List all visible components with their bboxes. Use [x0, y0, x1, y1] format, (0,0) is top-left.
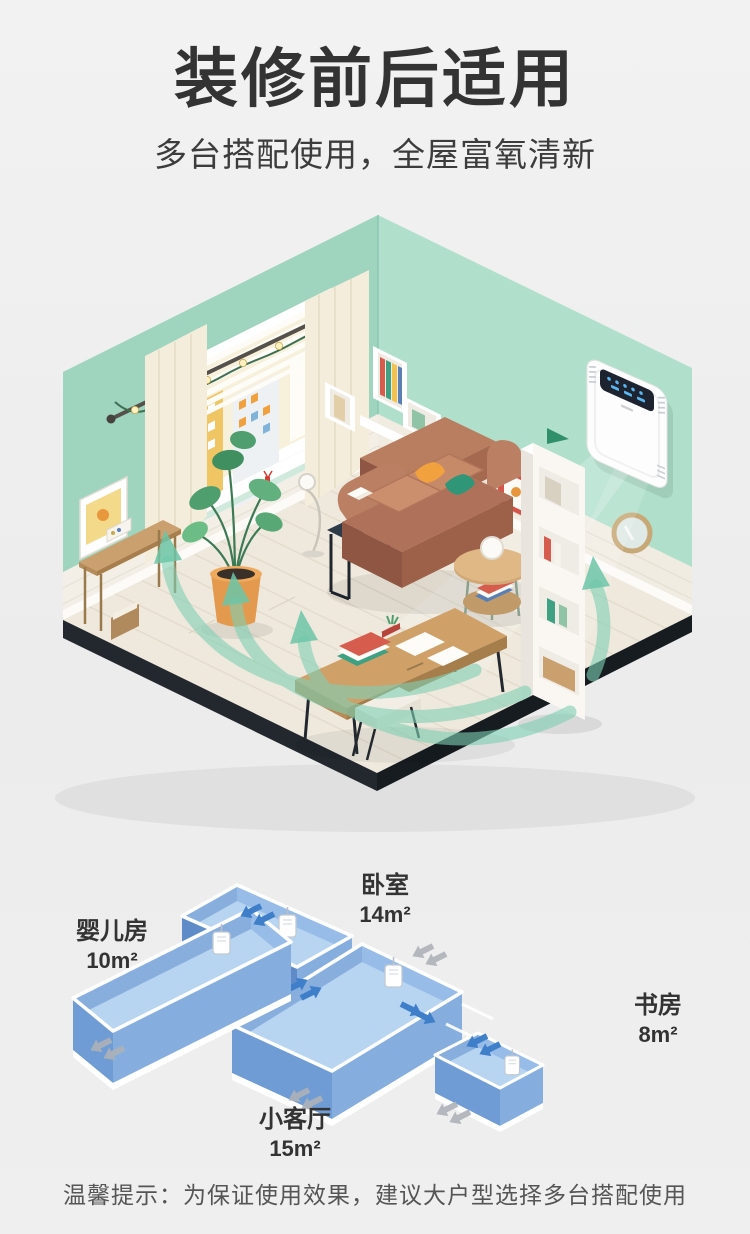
- promo-page: 装修前后适用 多台搭配使用，全屋富氧清新: [0, 0, 750, 1234]
- floorplan: 婴儿房 10m² 卧室 14m² 书房 8m² 小客厅 15m²: [25, 858, 725, 1193]
- page-title: 装修前后适用: [0, 44, 750, 114]
- label-study: 书房 8m²: [593, 990, 723, 1050]
- room-illustration-svg: [55, 200, 695, 840]
- label-baby-room: 婴儿房 10m²: [47, 916, 177, 976]
- exhaust-arrows: [409, 940, 449, 971]
- label-bedroom: 卧室 14m²: [320, 870, 450, 930]
- footer-tip: 温馨提示：为保证使用效果，建议大户型选择多台搭配使用: [0, 1176, 750, 1210]
- room-illustration: [55, 200, 695, 840]
- label-living-room: 小客厅 15m²: [230, 1104, 360, 1164]
- page-subtitle: 多台搭配使用，全屋富氧清新: [0, 128, 750, 176]
- ball-lamp: [481, 537, 503, 559]
- header: 装修前后适用 多台搭配使用，全屋富氧清新: [0, 44, 750, 176]
